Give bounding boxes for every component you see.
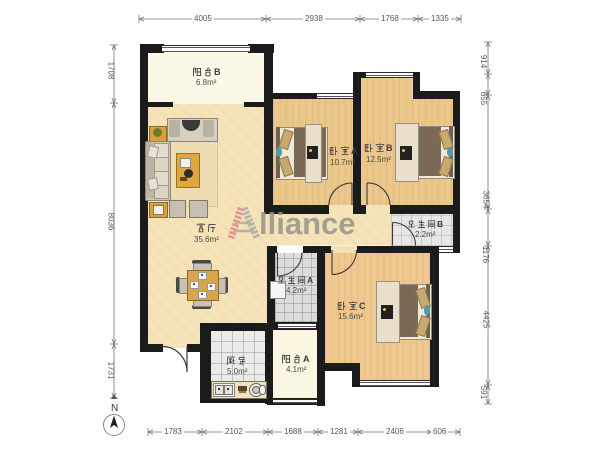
svg-text:N: N	[111, 403, 118, 414]
